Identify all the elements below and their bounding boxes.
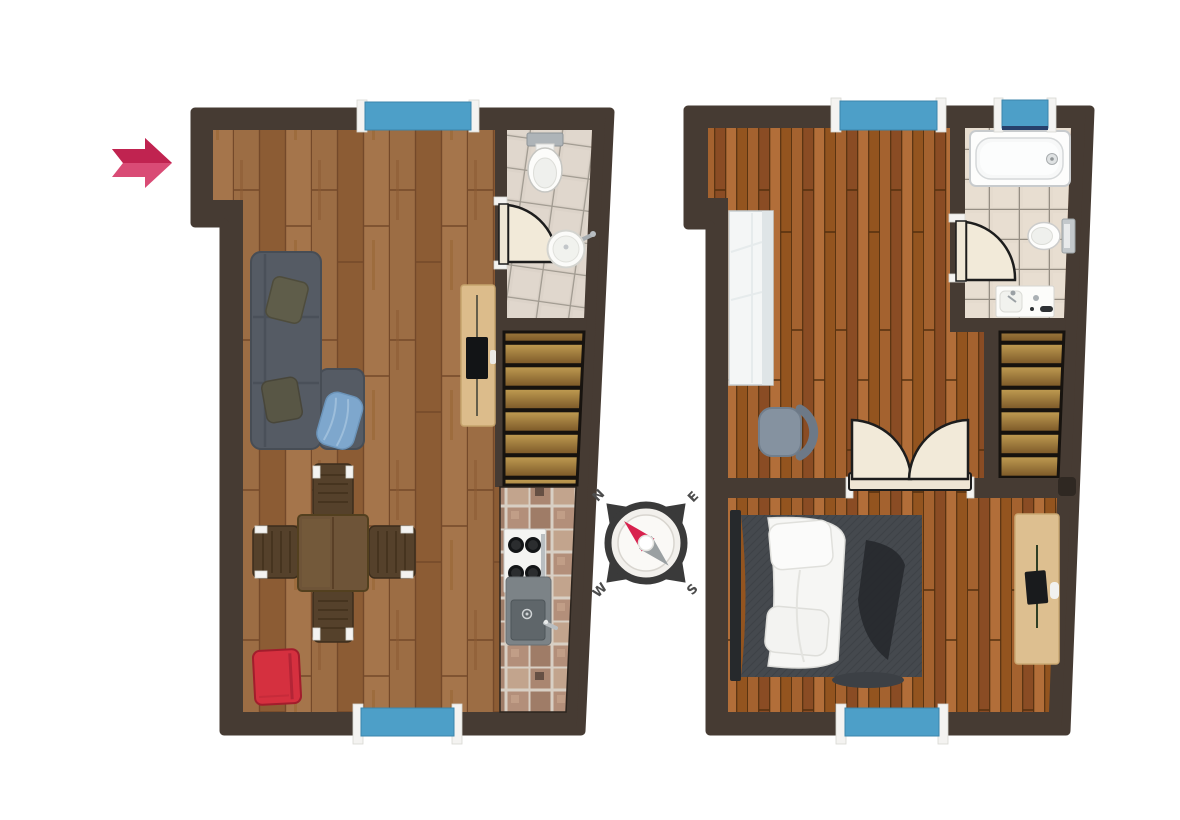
right-window-bathroom [994,98,1056,132]
dining-chair [253,526,299,578]
sofa-pillow [261,376,304,424]
tv-sideboard [461,285,496,426]
floor-plan-left [195,100,610,744]
right-bathroom-wall-bottom [950,318,1066,332]
toilet [1028,219,1075,253]
tv [466,337,488,379]
divider-wall-right [974,478,1059,498]
left-window-top [357,100,479,132]
toilet [527,133,563,192]
compass-south-label: S [684,581,701,598]
right-window-bottom [836,704,948,744]
floor-plan-right [688,98,1090,744]
entrance-arrow [112,138,172,188]
desk [1015,514,1059,664]
dining-chair [313,588,353,642]
bed-pillow [768,519,834,570]
compass-east-label: E [685,489,702,506]
right-staircase [1000,332,1064,480]
bathtub [970,131,1070,186]
dining-chair [369,526,415,578]
compass-west-label: W [590,580,611,601]
bed [730,510,922,688]
wall-junction-knob [1058,477,1076,496]
divider-wall-left [728,478,846,498]
bed-headboard [730,510,741,681]
dining-table [298,515,368,591]
left-staircase [504,332,584,485]
wash-basin [996,286,1054,317]
right-window-top [831,98,946,132]
red-armchair [253,649,302,705]
right-stairs-wall [984,332,1000,480]
floorplan-canvas: N E S W [0,0,1180,820]
laptop [1025,570,1049,605]
left-bathroom-wall-bottom [495,318,587,332]
wardrobe [729,211,773,385]
kitchen-sink [506,577,556,645]
dining-chair [313,464,353,518]
left-window-bottom [353,704,462,744]
